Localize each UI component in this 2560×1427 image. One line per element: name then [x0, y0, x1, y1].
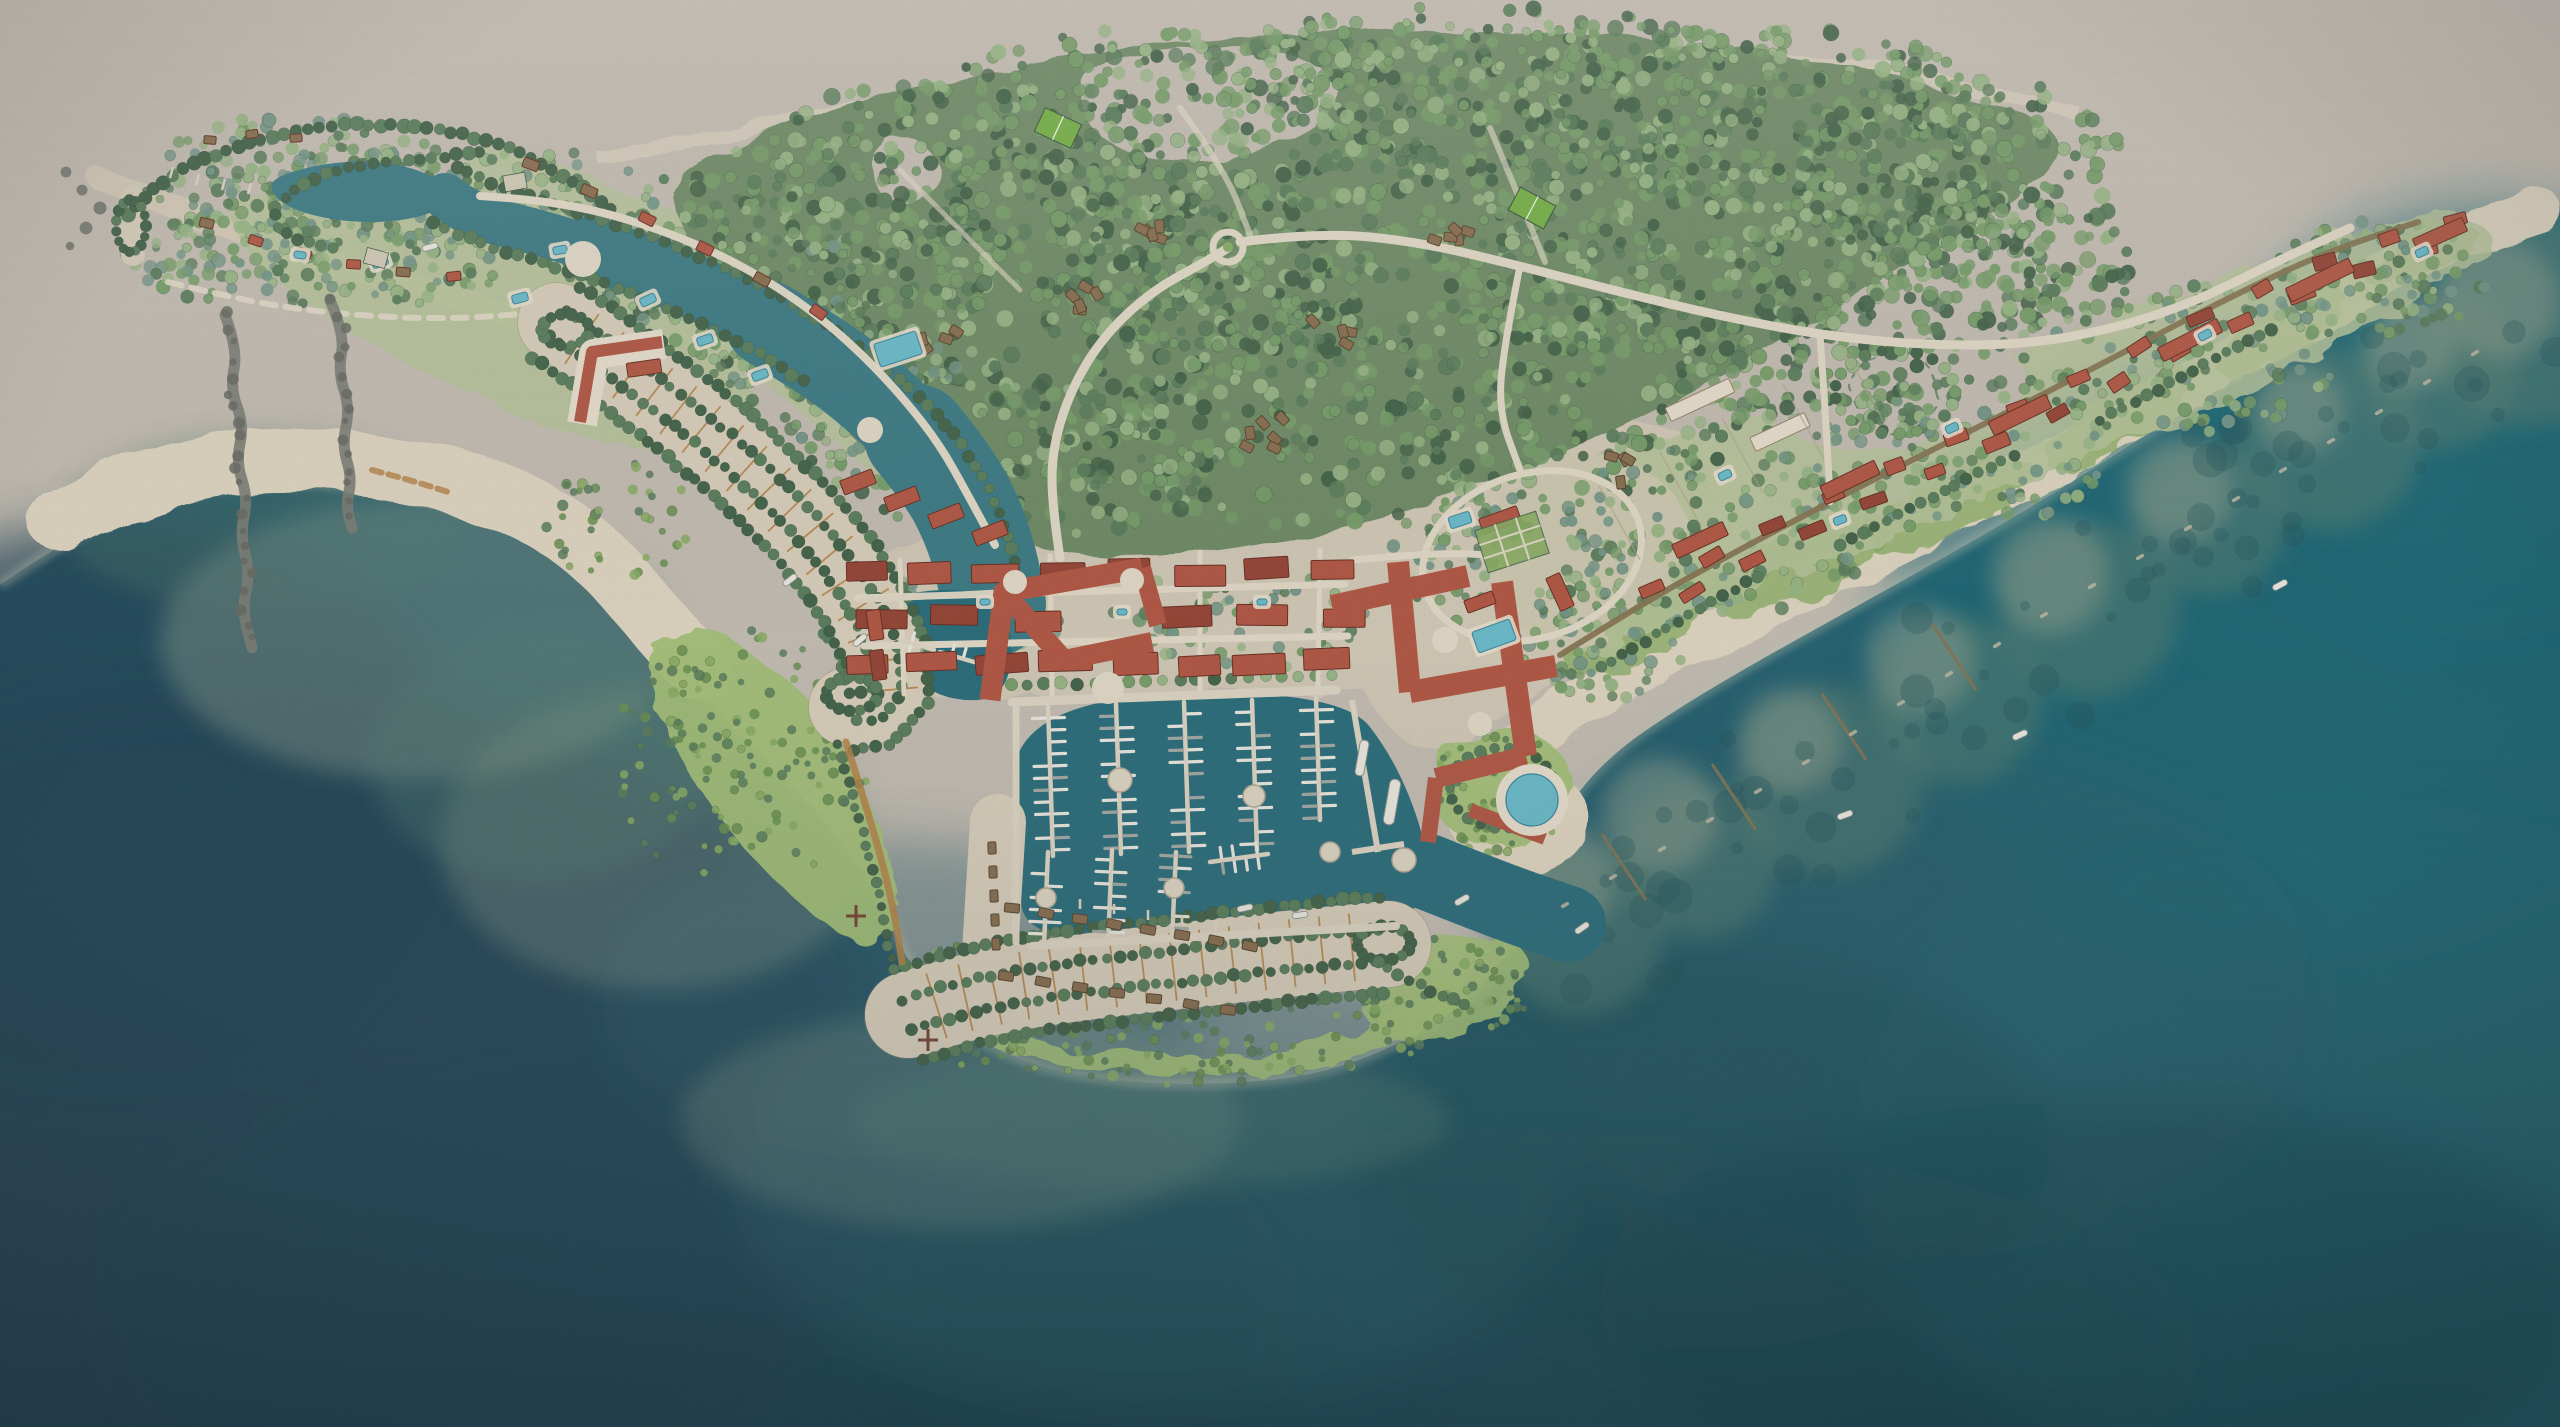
masterplan-map: Illustrated aerial master plan of a coas…: [0, 0, 2560, 1427]
